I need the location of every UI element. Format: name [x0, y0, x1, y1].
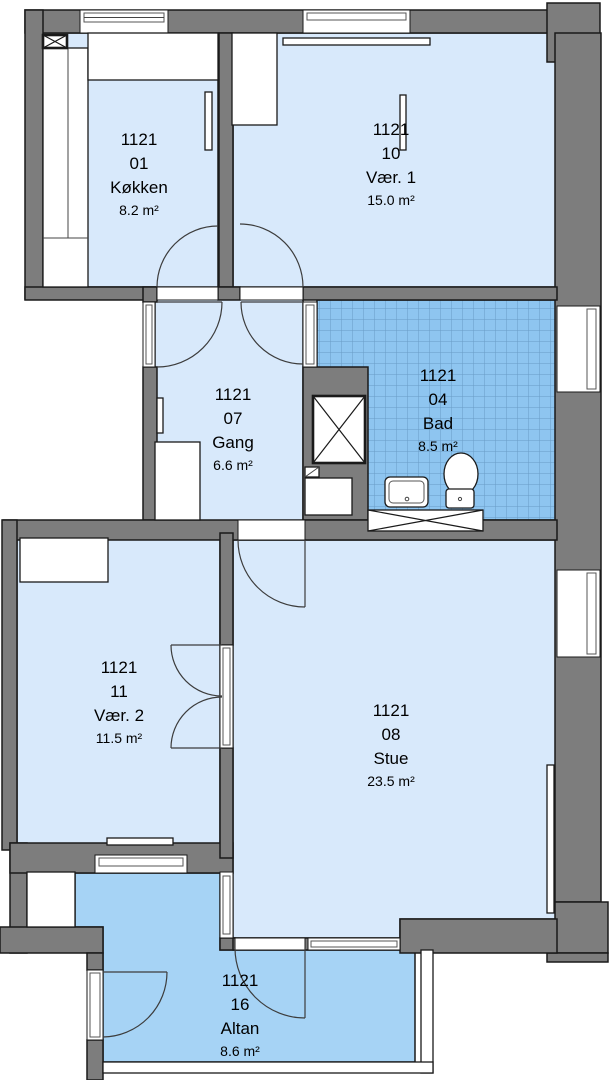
livingroom-window-glass [587, 573, 596, 654]
exterior-niche [27, 872, 75, 927]
room-building: 1121 [212, 383, 254, 407]
room-building: 1121 [94, 656, 144, 680]
livingroom-door-opening [238, 520, 305, 540]
floor-plan: 1121 01 Køkken 8.2 m² 1121 10 Vær. 1 15.… [0, 0, 609, 1080]
bedroom1-door-opening [240, 287, 303, 300]
wall-kitchen-bottom [25, 287, 157, 300]
wall-bottom-right-step [547, 953, 608, 962]
room-number: 07 [212, 407, 254, 431]
bedroom1-window-sill [283, 38, 430, 45]
bedroom2-window-glass [99, 858, 183, 866]
livingroom-bottom-window-glass [311, 941, 397, 947]
room-number: 08 [367, 723, 414, 747]
wall-bedroom2-livingroom-upper [220, 533, 233, 645]
room-label-bad: 1121 04 Bad 8.5 m² [418, 364, 458, 456]
toilet-tank-icon [446, 489, 474, 508]
wall-right-lower-block [555, 902, 608, 953]
bathroom-door-leafline [306, 305, 314, 364]
livingroom-radiator [547, 765, 554, 913]
room-name: Vær. 2 [94, 704, 144, 728]
room-building: 1121 [366, 118, 416, 142]
room-label-gang: 1121 07 Gang 6.6 m² [212, 383, 254, 475]
wall-balcony-pillar-top [87, 953, 103, 970]
hallway-radiator [157, 398, 163, 433]
room-number: 16 [220, 993, 260, 1017]
wall-kitchen-bedroom1-divider [219, 33, 233, 287]
bedroom1-closet [232, 33, 277, 125]
room-name: Stue [367, 747, 414, 771]
wall-bedroom2-livingroom-lower [220, 748, 233, 858]
wall-right [555, 33, 601, 902]
room-label-vaer2: 1121 11 Vær. 2 11.5 m² [94, 656, 144, 748]
entrance-door-leafline [146, 305, 152, 364]
room-number: 11 [94, 680, 144, 704]
room-number: 04 [418, 388, 458, 412]
balcony-door-opening [235, 938, 305, 950]
room-name: Bad [418, 412, 458, 436]
wall-balcony-left-band [0, 927, 103, 953]
wall-entry-pillar-top [143, 287, 157, 302]
wall-livingroom-bottom [400, 919, 557, 953]
wall-balcony-pillar-bottom [87, 1040, 103, 1080]
room-building: 1121 [220, 969, 260, 993]
sink-basin-icon [389, 481, 424, 503]
bedroom2-window-sill [107, 838, 173, 845]
bedroom2-frenchdoor-leafline [223, 648, 230, 745]
room-label-kokken: 1121 01 Køkken 8.2 m² [110, 128, 168, 220]
livingroom-side-window-glass [223, 876, 230, 934]
room-area: 8.2 m² [110, 200, 168, 220]
wall-center-pillar [218, 287, 240, 300]
wall-bedroom1-bottom [303, 287, 557, 300]
kitchen-counter-top [88, 33, 218, 80]
room-name: Køkken [110, 176, 168, 200]
kitchen-door-opening [157, 287, 218, 300]
room-number: 01 [110, 152, 168, 176]
room-label-vaer1: 1121 10 Vær. 1 15.0 m² [366, 118, 416, 210]
room-area: 23.5 m² [367, 771, 414, 791]
wall-left-bedroom2 [2, 520, 17, 850]
kitchen-radiator [205, 92, 212, 150]
wall-left-kitchen [25, 10, 43, 299]
balcony-railing-bottom [103, 1062, 433, 1073]
bathroom-cabinet [305, 478, 352, 515]
room-area: 8.6 m² [220, 1041, 260, 1061]
kitchen-counter-left [43, 48, 88, 287]
room-name: Altan [220, 1017, 260, 1041]
room-label-altan: 1121 16 Altan 8.6 m² [220, 969, 260, 1061]
room-area: 15.0 m² [366, 190, 416, 210]
room-building: 1121 [367, 699, 414, 723]
room-area: 11.5 m² [94, 728, 144, 748]
bathroom-window-glass [587, 309, 596, 389]
room-number: 10 [366, 142, 416, 166]
floor-plan-drawing [0, 0, 609, 1080]
balcony-left-door-leafline [90, 973, 100, 1037]
room-building: 1121 [418, 364, 458, 388]
room-building: 1121 [110, 128, 168, 152]
room-area: 6.6 m² [212, 455, 254, 475]
bedroom1-window-glass [307, 13, 406, 20]
bedroom2-wardrobe [20, 538, 108, 582]
hallway-cabinet [155, 442, 200, 520]
balcony-railing-right [421, 950, 433, 1073]
room-name: Vær. 1 [366, 166, 416, 190]
room-name: Gang [212, 431, 254, 455]
room-label-stue: 1121 08 Stue 23.5 m² [367, 699, 414, 791]
room-area: 8.5 m² [418, 436, 458, 456]
